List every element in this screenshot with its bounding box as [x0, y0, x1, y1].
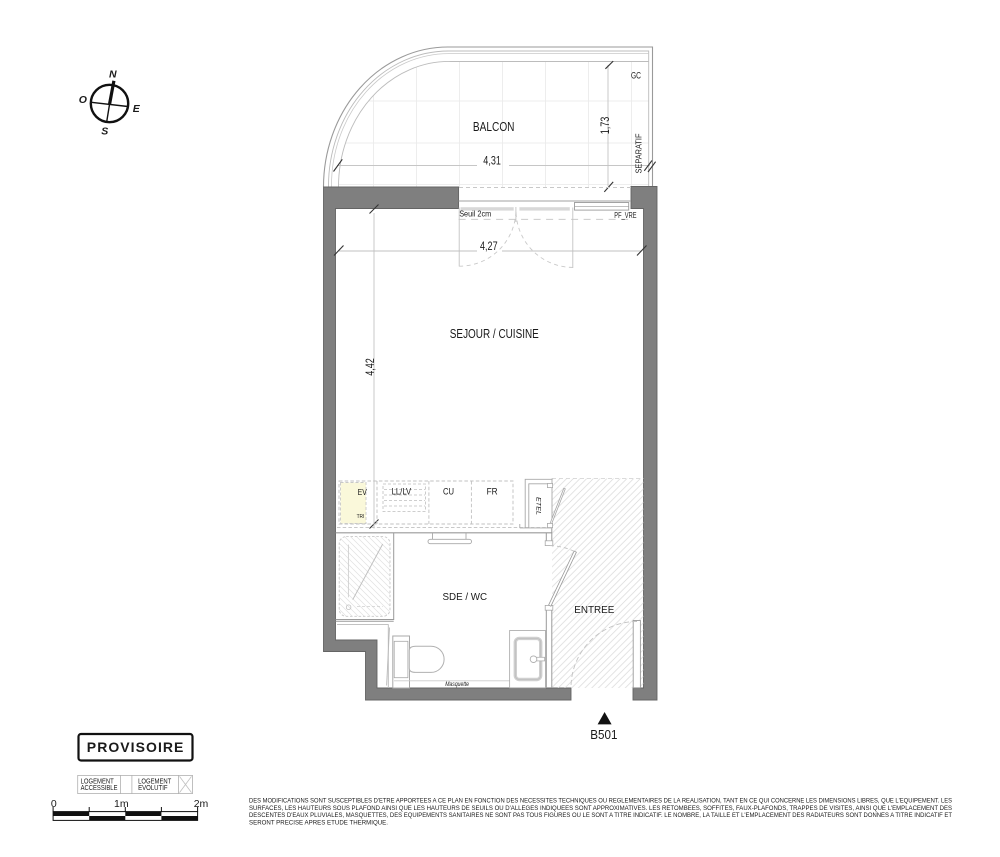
svg-text:4,42: 4,42: [363, 358, 377, 376]
svg-text:S: S: [101, 126, 108, 138]
svg-text:O: O: [79, 94, 87, 106]
svg-text:SURFACES, LES HAUTEURS SOUS PL: SURFACES, LES HAUTEURS SOUS PLAFOND AINS…: [249, 805, 952, 812]
svg-text:ETEL: ETEL: [535, 497, 542, 516]
svg-text:B501: B501: [590, 727, 617, 742]
svg-text:N: N: [109, 69, 117, 81]
svg-text:Seuil 2cm: Seuil 2cm: [459, 210, 491, 219]
svg-text:GC: GC: [631, 71, 641, 81]
svg-text:ENTREE: ENTREE: [574, 605, 614, 616]
svg-text:1m: 1m: [114, 798, 129, 810]
svg-text:BALCON: BALCON: [473, 119, 515, 134]
svg-text:FR: FR: [487, 486, 498, 496]
svg-text:TRI: TRI: [357, 514, 365, 520]
svg-text:0: 0: [51, 798, 57, 810]
svg-text:E: E: [133, 103, 141, 115]
svg-text:1,73: 1,73: [598, 116, 612, 134]
svg-text:PROVISOIRE: PROVISOIRE: [87, 739, 184, 755]
svg-text:LL/LV: LL/LV: [392, 486, 412, 496]
svg-text:ACCESSIBLE: ACCESSIBLE: [81, 785, 118, 792]
svg-text:4,27: 4,27: [480, 239, 498, 253]
svg-text:EV: EV: [358, 487, 367, 497]
svg-text:2m: 2m: [194, 798, 209, 810]
svg-text:DES MODIFICATIONS SONT SUSCEPT: DES MODIFICATIONS SONT SUSCEPTIBLES D'ET…: [249, 798, 952, 805]
svg-text:SDE / WC: SDE / WC: [443, 592, 488, 603]
svg-text:DESCENTES D'EAUX PLUVIALES, MA: DESCENTES D'EAUX PLUVIALES, MASQUETTES, …: [249, 812, 952, 819]
svg-text:SEPARATIF: SEPARATIF: [635, 133, 644, 173]
svg-text:SEJOUR / CUISINE: SEJOUR / CUISINE: [450, 326, 539, 341]
svg-text:PF_VRE: PF_VRE: [614, 210, 637, 220]
svg-text:EVOLUTIF: EVOLUTIF: [138, 785, 168, 792]
svg-text:4,31: 4,31: [483, 153, 501, 167]
svg-text:SERONT PRECISE APRES ETUDE THE: SERONT PRECISE APRES ETUDE THERMIQUE.: [249, 819, 388, 826]
svg-text:CU: CU: [443, 486, 454, 496]
svg-text:Masquette: Masquette: [445, 682, 469, 688]
